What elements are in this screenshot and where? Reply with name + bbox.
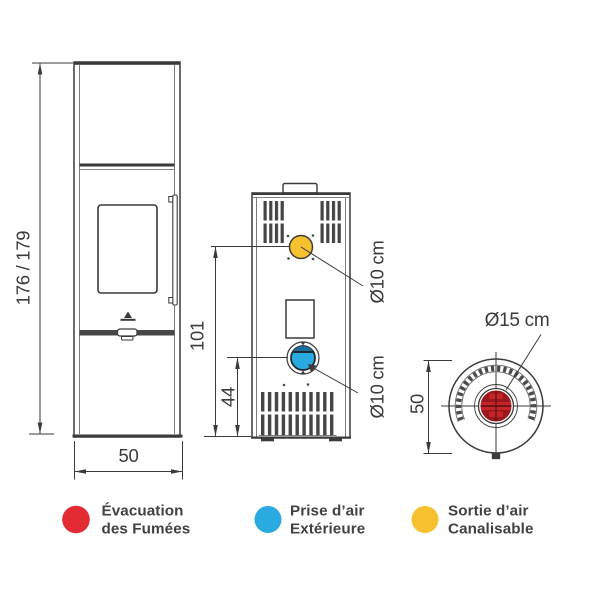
legend-item-ductable-air: Sortie d’air Canalisable: [412, 503, 534, 538]
rear-left-foot: [261, 439, 274, 442]
flue-outlet: [475, 385, 518, 428]
rear-view: Ø10 cm Ø10 cm: [186, 184, 387, 442]
ductable-air-dot-icon: [412, 506, 439, 533]
legend-item-outside-air: Prise d’air Extérieure: [255, 503, 366, 538]
front-width-dimension: 50: [75, 441, 183, 480]
front-width-label: 50: [119, 445, 139, 466]
legend-duct-line2: Canalisable: [448, 521, 534, 538]
rear-intake-duct-label: Ø10 cm: [366, 356, 387, 419]
top-depth-label: 50: [406, 394, 427, 414]
legend-flue-line2: des Fumées: [102, 521, 191, 538]
front-view: 176 / 179 50: [12, 62, 182, 480]
rear-right-foot: [329, 439, 342, 442]
legend-air-line1: Prise d’air: [290, 503, 365, 520]
door-handle: [173, 195, 177, 305]
legend-flue-line1: Évacuation: [102, 503, 184, 520]
front-top-edge: [74, 62, 180, 65]
rear-opening: [286, 300, 314, 338]
legend-duct-line1: Sortie d’air: [448, 503, 529, 520]
rear-height-label: 101: [186, 321, 207, 351]
stove-technical-drawing: 176 / 179 50: [0, 0, 600, 600]
legend-item-flue-exhaust: Évacuation des Fumées: [62, 503, 190, 538]
top-depth-dimension: 50: [406, 361, 452, 454]
front-height-label: 176 / 179: [12, 231, 33, 305]
legend: Évacuation des Fumées Prise d’air Extéri…: [62, 503, 533, 538]
outside-air-intake: [287, 342, 319, 375]
flue-exhaust-dot-icon: [62, 506, 90, 534]
stove-dimensions-sheet: 176 / 179 50: [0, 0, 600, 600]
legend-air-line2: Extérieure: [290, 521, 365, 538]
front-bottom-edge: [73, 435, 183, 438]
rear-canalisable-duct-label: Ø10 cm: [366, 241, 387, 304]
rear-intake-height-label: 44: [217, 387, 238, 407]
front-latch: [118, 329, 138, 336]
top-view: Ø15 cm 50: [406, 310, 551, 459]
door-window: [98, 205, 157, 293]
front-top-divider: [80, 164, 175, 167]
front-height-dimension: 176 / 179: [12, 63, 73, 434]
front-latch-tab: [122, 337, 134, 341]
outside-air-dot-icon: [255, 506, 282, 533]
top-rear-tab: [492, 453, 500, 459]
rear-top-edge: [252, 193, 350, 195]
top-flue-label: Ø15 cm: [485, 310, 550, 331]
flue-collar: [283, 184, 317, 194]
